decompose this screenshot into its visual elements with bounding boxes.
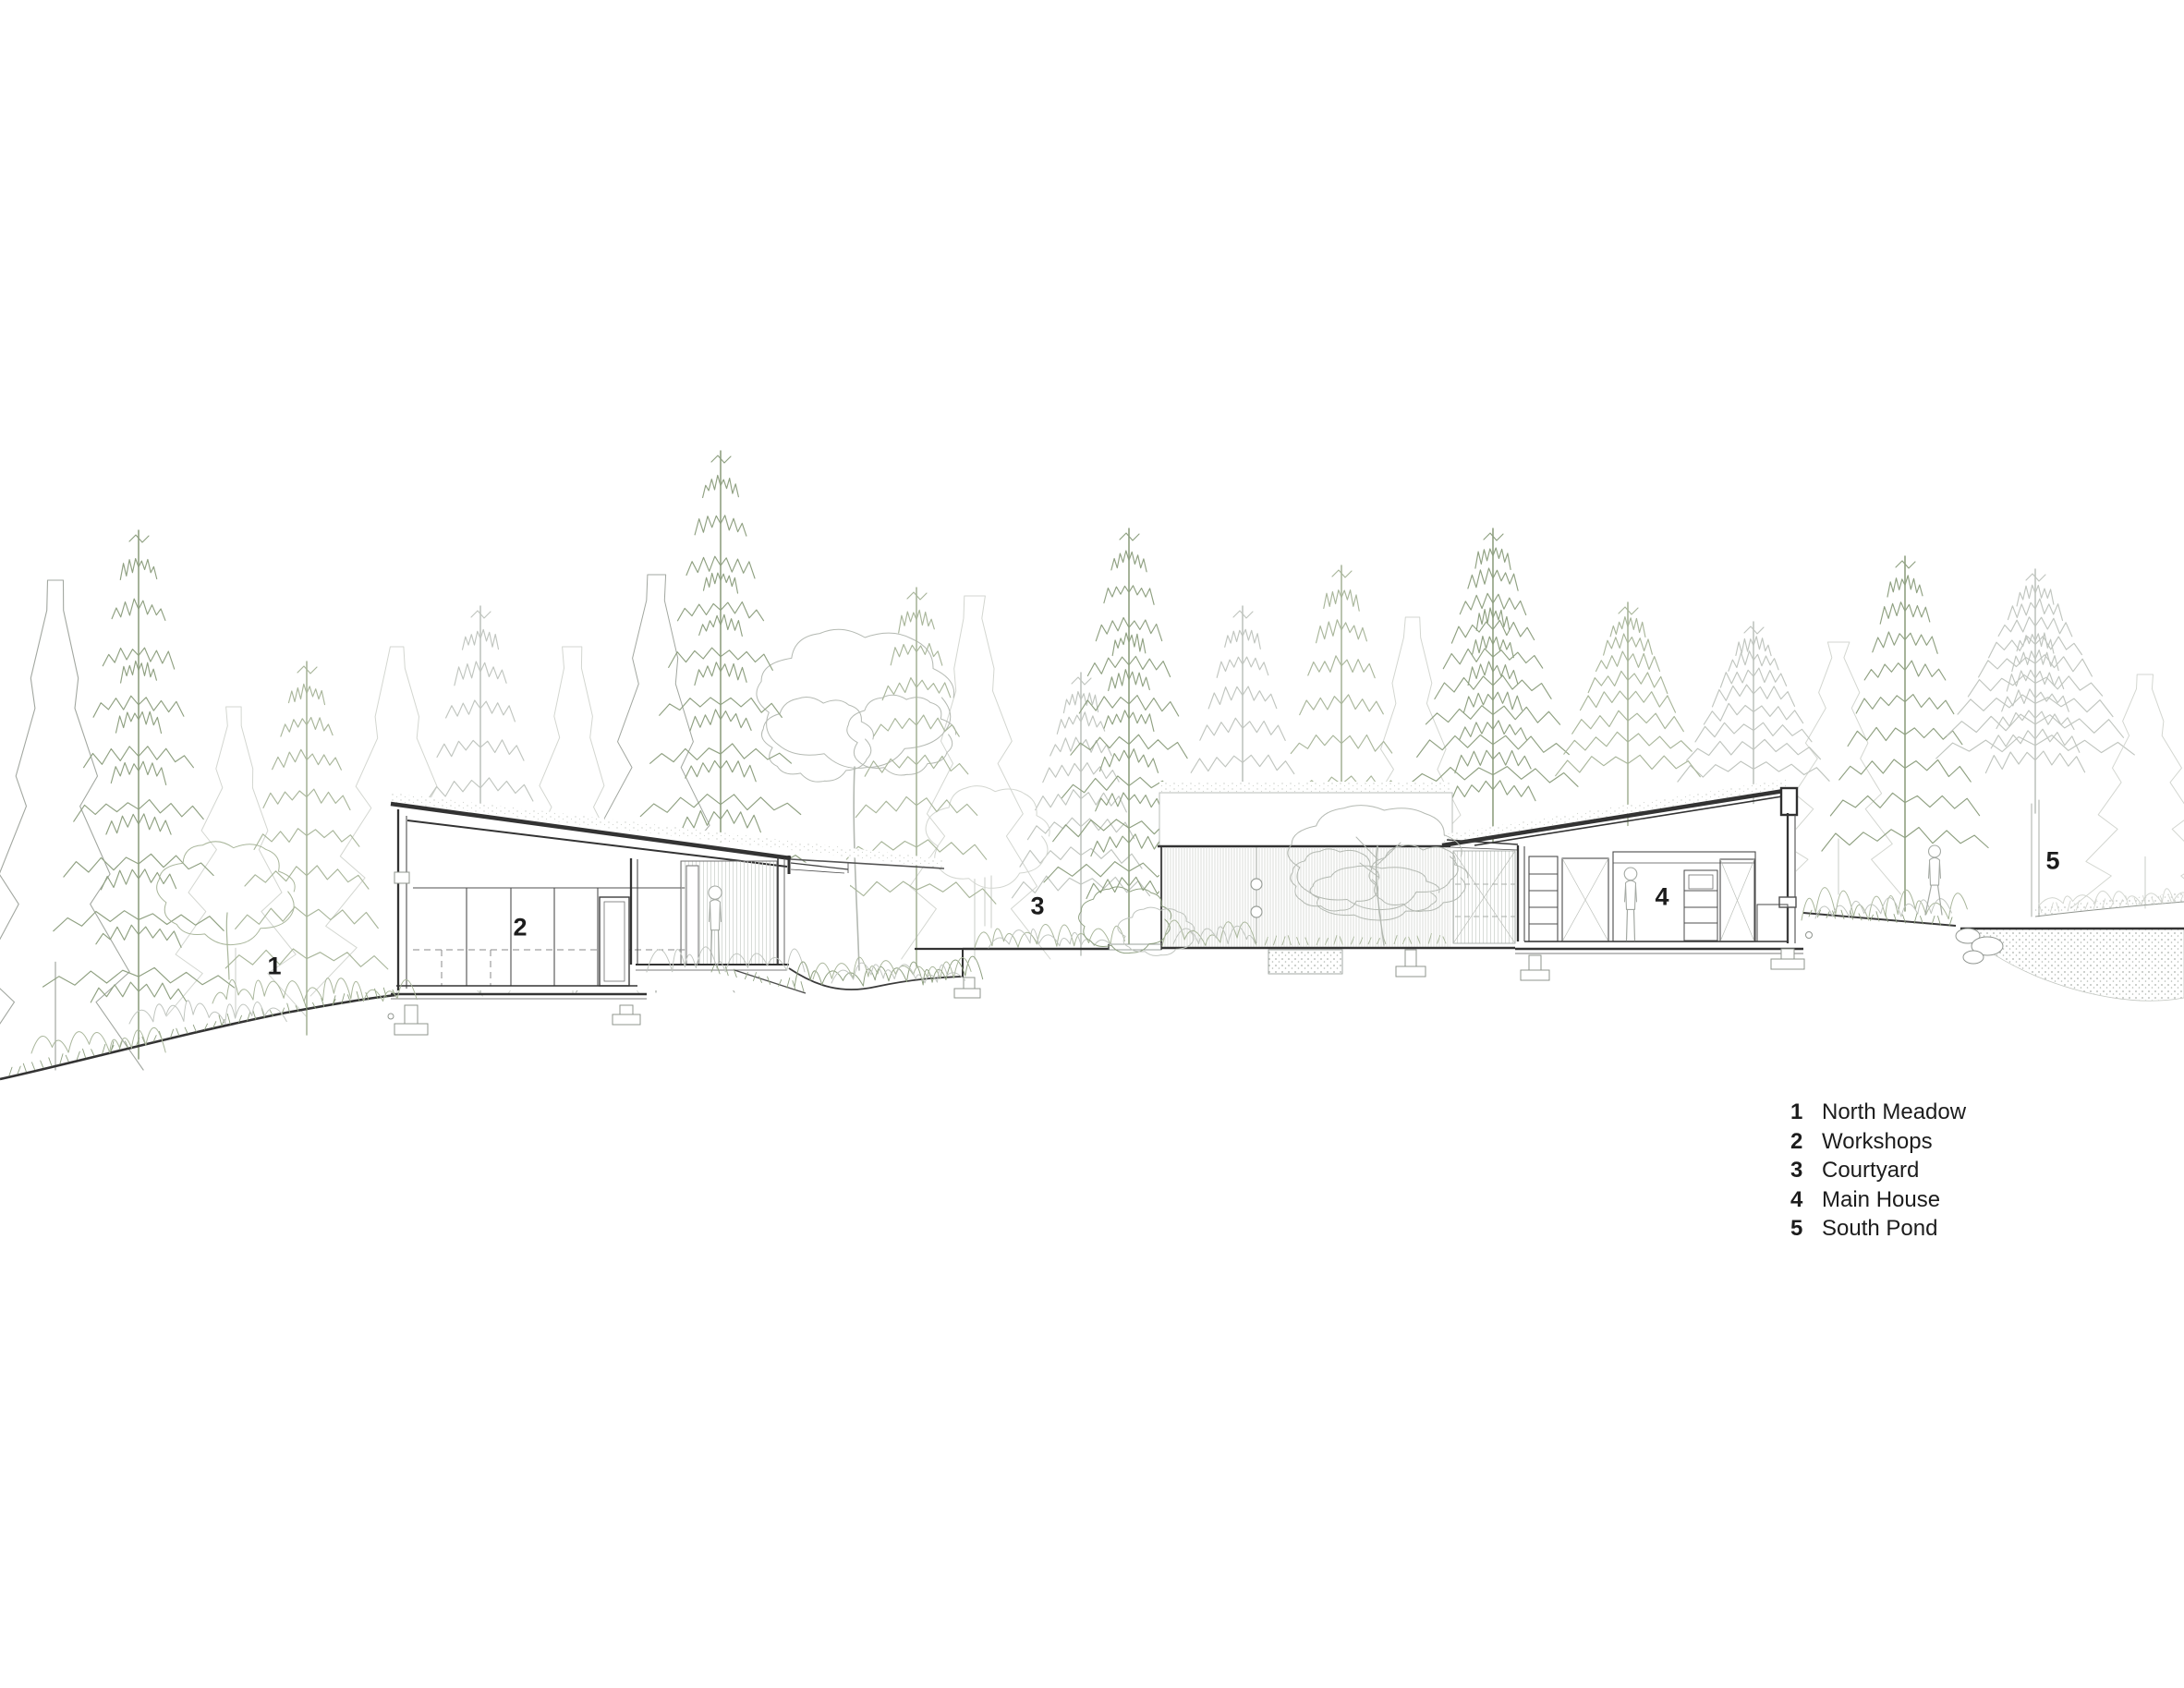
legend: 1 North Meadow 2 Workshops 3 Courtyard 4… <box>1790 1099 1966 1245</box>
main-house-section <box>1396 779 1813 980</box>
legend-item: 4 Main House <box>1790 1187 1966 1217</box>
main-fascia-block <box>1781 788 1797 815</box>
legend-item-label: Courtyard <box>1822 1158 1919 1184</box>
legend-item-number: 4 <box>1790 1187 1822 1213</box>
rear-wing-elevation <box>1158 782 1452 948</box>
footing-stem <box>1781 949 1794 959</box>
legend-item: 3 Courtyard <box>1790 1158 1966 1187</box>
callout-main-house: 4 <box>1655 883 1668 912</box>
rear-roof-texture <box>1159 782 1452 793</box>
cleanout-marker <box>1806 932 1813 939</box>
south-bank <box>1803 913 1956 926</box>
foreground-vegetation <box>9 806 2184 1075</box>
legend-item-number: 5 <box>1790 1216 1822 1242</box>
legend-item-label: Main House <box>1822 1187 1940 1213</box>
callout-south-pond: 5 <box>2045 847 2059 876</box>
footing-stem <box>405 1005 418 1024</box>
ground-profile <box>0 893 2184 1079</box>
section-drawing-page: 1 2 3 4 5 1 North Meadow 2 Workshops 3 C… <box>0 0 2184 1688</box>
legend-item-label: South Pond <box>1822 1216 1937 1242</box>
legend-item-number: 3 <box>1790 1158 1822 1184</box>
rain-chain-ring <box>1251 906 1262 917</box>
legend-item: 2 Workshops <box>1790 1129 1966 1159</box>
north-meadow-slope <box>0 995 396 1079</box>
retaining-footing-stem <box>964 978 975 989</box>
footing-stem <box>1529 955 1541 970</box>
footing-stem <box>620 1005 633 1014</box>
wall-joint <box>394 872 409 883</box>
rear-fascia-band <box>1159 793 1452 846</box>
porch-door-jamb <box>686 866 698 965</box>
terrace-curb <box>1109 944 1161 950</box>
drain-marker <box>388 1014 394 1019</box>
footing-pad <box>394 1024 428 1035</box>
rear-siding-wall <box>1161 847 1452 948</box>
footing-pad <box>613 1014 640 1025</box>
forest-band <box>0 451 2184 1070</box>
legend-item-label: North Meadow <box>1822 1099 1966 1125</box>
footing-pad <box>1771 959 1804 969</box>
footing-pad <box>1396 966 1426 977</box>
workshops-section <box>388 793 944 1035</box>
rain-chain-ring <box>1251 879 1262 890</box>
legend-item-number: 2 <box>1790 1129 1822 1155</box>
sunken-gravel-strip <box>1268 950 1342 974</box>
callout-courtyard: 3 <box>1030 893 1044 921</box>
legend-item-number: 1 <box>1790 1099 1822 1125</box>
retaining-footing-pad <box>954 989 980 998</box>
legend-item-label: Workshops <box>1822 1129 1933 1155</box>
callout-workshops: 2 <box>513 914 527 942</box>
legend-item: 1 North Meadow <box>1790 1099 1966 1129</box>
buildings <box>388 779 1813 1035</box>
callout-north-meadow: 1 <box>267 953 281 981</box>
footing-stem <box>1405 950 1416 966</box>
legend-item: 5 South Pond <box>1790 1216 1966 1245</box>
site-section-drawing <box>0 0 2184 1688</box>
footing-pad <box>1521 970 1549 980</box>
